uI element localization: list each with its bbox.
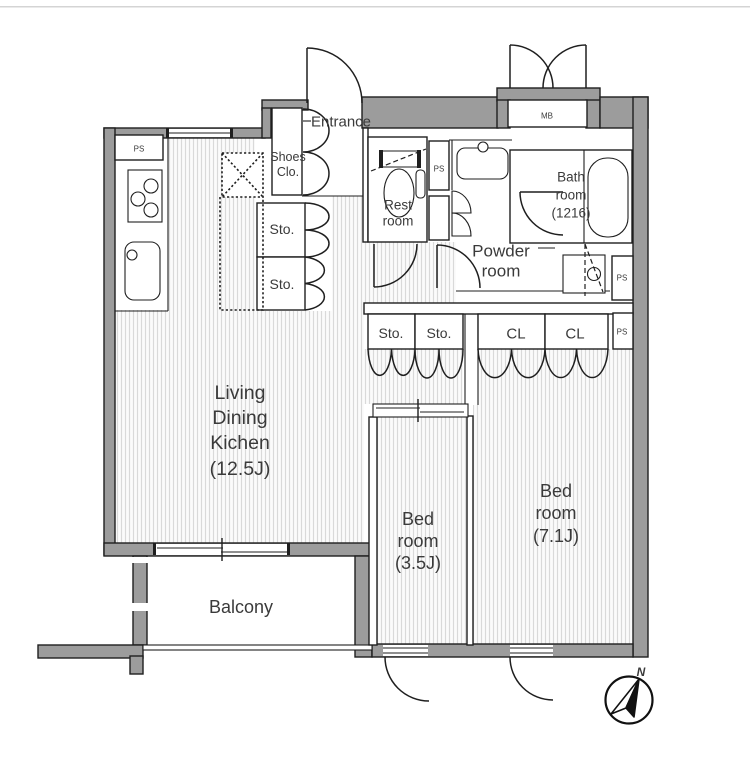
ps-label-east-2: PS <box>617 328 628 337</box>
powder-label-1: Powder <box>472 242 530 261</box>
bedroom-large-label-2: room <box>535 503 576 523</box>
wall-top-center <box>362 97 498 128</box>
cl-label-2: CL <box>565 326 584 343</box>
wall-bedroom-small-west <box>369 417 377 645</box>
kitchen-window <box>166 128 233 138</box>
ps-label-restroom: PS <box>434 165 445 174</box>
restroom-label-2: room <box>383 214 414 229</box>
ps-label-kitchen: PS <box>134 145 145 154</box>
wall-balcony-divider <box>38 645 143 658</box>
wall-east <box>633 97 648 657</box>
bedroom-large-label-3: (7.1J) <box>533 526 579 546</box>
wall-hall-restroom <box>363 128 368 242</box>
powder-bifold-door <box>452 191 471 236</box>
wall-mb-top <box>497 88 600 101</box>
entrance-label: Entrance <box>311 114 371 131</box>
balcony-label: Balcony <box>209 597 273 617</box>
restroom-label-1: Rest <box>384 198 412 213</box>
mb-label: MB <box>541 112 553 121</box>
ldk-label-4: (12.5J) <box>210 458 271 480</box>
compass-icon <box>606 677 653 724</box>
north-label: N <box>637 665 646 679</box>
floorplan-svg: PS PS PS PS MB Entrance Shoes Clo. Sto. … <box>0 0 750 757</box>
mb-double-doors <box>510 45 586 88</box>
ldk-label-3: Kichen <box>210 432 270 454</box>
storage-label-k2: Sto. <box>270 276 295 292</box>
entrance-door-arc <box>307 48 362 103</box>
balcony-railing <box>143 645 372 650</box>
ldk-label-1: Living <box>215 382 266 404</box>
wash-basin-icon <box>457 142 508 179</box>
storage-label-m1: Sto. <box>379 325 404 341</box>
bedroom-small-window <box>383 645 429 701</box>
bath-label-2: room <box>556 188 587 203</box>
shoes-label-2: Clo. <box>277 165 299 179</box>
wall-balcony-west <box>133 556 147 645</box>
bath-label-1: Bath <box>557 170 585 185</box>
bedroom-small-label-3: (3.5J) <box>395 553 441 573</box>
wall-between-bedrooms <box>467 416 473 645</box>
image-border-line <box>0 6 750 8</box>
bedroom-large-label-1: Bed <box>540 481 572 501</box>
wall-west <box>104 128 115 555</box>
bedroom-small-label-2: room <box>397 531 438 551</box>
shoes-label-1: Shoes <box>270 150 305 164</box>
washing-machine-icon <box>563 244 605 296</box>
storage-label-m2: Sto. <box>427 325 452 341</box>
bedroom-large-window <box>510 645 553 700</box>
storage-label-k1: Sto. <box>270 221 295 237</box>
ldk-label-2: Dining <box>212 407 267 429</box>
bathtub-icon <box>588 158 628 237</box>
bath-label-3: (1216) <box>551 206 590 221</box>
ps-label-east-1: PS <box>617 274 628 283</box>
wall-corridor-south <box>364 303 633 314</box>
cl-label-1: CL <box>506 326 525 343</box>
powder-label-2: room <box>482 262 521 281</box>
floorplan-image: PS PS PS PS MB Entrance Shoes Clo. Sto. … <box>0 0 750 757</box>
wall-strip <box>465 314 478 405</box>
shelf-box <box>429 196 449 240</box>
bedroom-small-label-1: Bed <box>402 509 434 529</box>
